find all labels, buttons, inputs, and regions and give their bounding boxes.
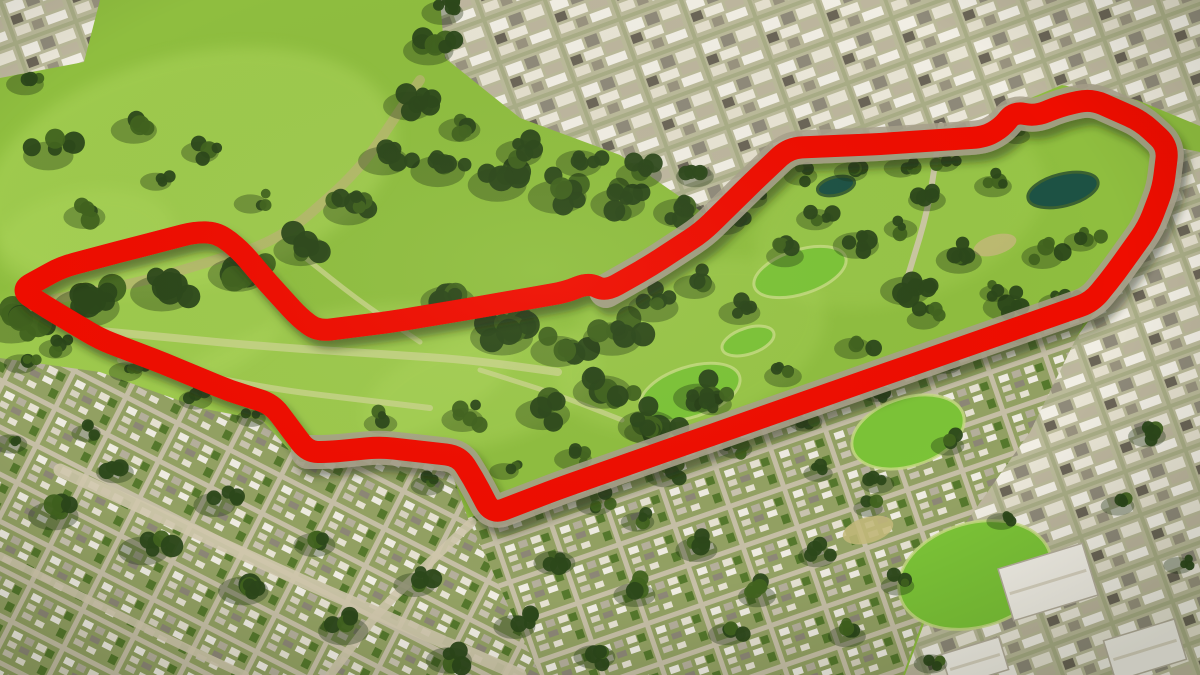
vignette-overlay <box>0 0 1200 675</box>
satellite-map-view <box>0 0 1200 675</box>
aerial-map-canvas <box>0 0 1200 675</box>
